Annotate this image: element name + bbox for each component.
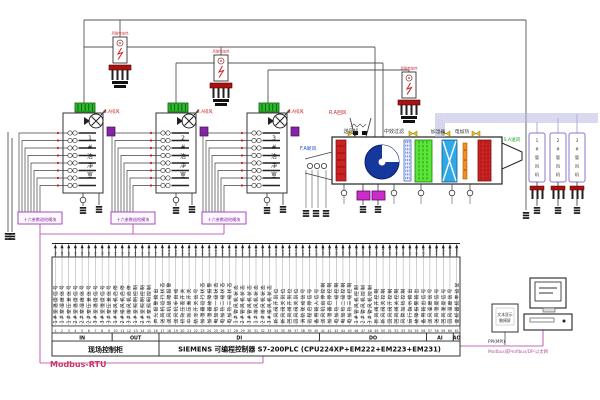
- wire-tag: I0.5: [194, 250, 198, 256]
- wire-label: 2#室湿度信号: [79, 284, 86, 323]
- svg-text:1: 1: [536, 138, 539, 143]
- terminal-number: 58: [435, 329, 439, 333]
- damper-actuator: [200, 127, 208, 136]
- fresh-air-label: F.A新风: [300, 145, 317, 152]
- wire-tag: AIW0: [428, 248, 432, 256]
- clean-room: 3#洁净室E.A排风十六参数巡检模块: [202, 103, 304, 224]
- wire-label: 3#管风机状态: [246, 284, 253, 323]
- wire-tag: AIW2: [435, 248, 439, 256]
- humidifier-label: 加湿器: [431, 128, 446, 135]
- frequency-inverter: [372, 191, 385, 200]
- wire-label: 声光报警输出: [152, 288, 159, 324]
- cabinet-label: 现场控制柜: [88, 345, 123, 354]
- terminal-number: 54: [408, 329, 412, 333]
- terminal-number: 14: [140, 329, 144, 333]
- svg-text:管: 管: [535, 154, 539, 161]
- terminal-number: 51: [388, 329, 392, 333]
- wire-tag: I0.3: [181, 250, 185, 256]
- wire-label: 电加热二级控制: [340, 282, 347, 324]
- frequency-inverter: [357, 191, 370, 200]
- wire-tag: X4: [74, 251, 78, 255]
- wire-label: 消防联动信号: [299, 288, 306, 324]
- terminal-number: 37: [294, 329, 298, 333]
- terminal-number: 29: [241, 329, 245, 333]
- wire-tag: I2.1: [274, 250, 278, 256]
- wire-label: 回风湿度信号: [447, 288, 454, 324]
- wire-label: 运行指示输出: [406, 288, 413, 324]
- wire-tag: X2: [60, 251, 64, 255]
- terminal-number: 43: [334, 329, 338, 333]
- wire-label: 回风温度信号: [440, 288, 447, 324]
- terminal-number: 34: [274, 329, 278, 333]
- svg-text:#: #: [575, 147, 579, 152]
- wire-tag: I1.4: [241, 250, 245, 256]
- terminal-number: 15: [147, 329, 151, 333]
- wire-label: 2#排风机状态: [259, 284, 266, 323]
- wire-tag: I0.6: [201, 250, 205, 256]
- wire-label: 1#室湿度信号: [59, 284, 66, 323]
- terminal-number: 36: [287, 329, 291, 333]
- wire-tag: I2.0: [267, 250, 271, 256]
- wire-tag: I2.6: [308, 250, 312, 256]
- terminal-number: 11: [120, 329, 124, 333]
- wire-tag: I1.1: [221, 250, 225, 256]
- duct-fan-unit: 2#管风机: [550, 133, 566, 214]
- medium-filter: [415, 140, 432, 182]
- wire-tag: Q1.0: [374, 248, 378, 255]
- terminal-number: 45: [348, 329, 352, 333]
- modbus-rtu-label: Modbus-RTU: [50, 360, 106, 369]
- hvac-plc-schematic: 1#洁净室E.A排风十六参数巡检模块2#洁净室E.A排风十六参数巡检模块3#洁净…: [0, 0, 600, 400]
- wire-label: 送风湿度信号: [433, 288, 440, 324]
- svg-text:#: #: [535, 147, 539, 152]
- wire-tag: Y2: [120, 252, 124, 256]
- terminal-number: 27: [227, 329, 231, 333]
- terminal-number: 61: [455, 329, 459, 333]
- wire-label: 1#管风机控制: [353, 284, 360, 323]
- wire-label: 3#排风机状态: [266, 284, 273, 323]
- io-section-label: IN: [79, 335, 85, 341]
- wire-label: 2#排风机启停: [119, 284, 126, 323]
- exhaust-fan-label: E.A排风: [288, 108, 304, 115]
- wire-label: 2#室照明控制: [139, 284, 146, 323]
- duct-sensor: [341, 190, 347, 196]
- duct-heater-label: 风管电加热: [213, 49, 231, 54]
- wire-label: 中效压差开关: [186, 288, 193, 324]
- wire-label: 3#室压差信号: [105, 284, 112, 323]
- terminal-number: 13: [134, 329, 138, 333]
- wire-tag: Q0.5: [354, 248, 358, 255]
- wire-tag: Y6: [147, 252, 151, 256]
- terminal-number: 25: [214, 329, 218, 333]
- terminal-number: 21: [187, 329, 191, 333]
- duct-electric-heater: 风管电加热: [210, 49, 232, 107]
- wire-label: 电加热二级状态: [219, 282, 226, 324]
- wire-tag: I0.0: [160, 250, 164, 256]
- terminal-number: 1: [54, 329, 56, 333]
- wire-label: 回风阀开控制: [386, 288, 393, 324]
- io-section-label: AI: [437, 335, 443, 341]
- terminal-number: 9: [108, 329, 110, 333]
- wire-tag: Y3: [127, 252, 131, 256]
- duct-electric-heater: 风管电加热: [398, 66, 420, 124]
- wire-tag: I2.5: [301, 250, 305, 256]
- svg-text:#: #: [556, 147, 560, 152]
- wire-tag: Q0.3: [341, 248, 345, 255]
- terminal-number: 32: [261, 329, 265, 333]
- wire-tag: I1.2: [227, 250, 231, 256]
- svg-text:洁: 洁: [180, 152, 186, 160]
- wire-tag: Q1.2: [388, 248, 392, 255]
- duct-heater-label: 风管电加热: [401, 66, 419, 71]
- wire-label: 3#排风机启停: [126, 284, 133, 323]
- terminal-number: 3: [68, 329, 70, 333]
- terminal-number: 42: [328, 329, 332, 333]
- terminal-number: 50: [381, 329, 385, 333]
- wire-label: 风管加热控制: [400, 288, 407, 324]
- parameter-module-label: 十六参数巡检模块: [117, 216, 150, 222]
- wire-label: 1#室压差信号: [65, 284, 72, 323]
- terminal-number: 17: [160, 329, 164, 333]
- duct-heater-label: 风管电加热: [112, 31, 130, 36]
- heater-grid: [463, 143, 467, 179]
- wire-label: 2#室温度信号: [72, 284, 79, 323]
- duct-fan-unit: 3#管风机: [569, 133, 585, 214]
- wire-label: 电加热一级控制: [333, 282, 340, 324]
- wire-tag: X5: [80, 251, 84, 255]
- terminal-number: 35: [281, 329, 285, 333]
- wire-label: 回风阀开到位: [286, 288, 293, 324]
- wire-label: 3#室湿度信号: [99, 284, 106, 323]
- wire-label: 3#管风机控制: [366, 284, 373, 323]
- wire-tag: Y7: [154, 252, 158, 256]
- io-section-label: AO: [453, 335, 461, 341]
- wire-label: 新风阀开控制: [373, 288, 380, 324]
- duct-sensor: [391, 190, 397, 196]
- svg-text:洁: 洁: [271, 152, 277, 160]
- terminal-number: 28: [234, 329, 238, 333]
- wire-label: 1#室照明控制: [132, 284, 139, 323]
- wire-tag: Q1.1: [381, 248, 385, 255]
- wire-tag: X7: [94, 251, 98, 255]
- wire-label: 2#管风机控制: [360, 284, 367, 323]
- wire-tag: Y5: [140, 252, 144, 256]
- terminal-number: 38: [301, 329, 305, 333]
- damper-actuator: [291, 127, 299, 136]
- terminal-number: 40: [314, 329, 318, 333]
- room-sensor: [264, 197, 270, 203]
- wire-label: 1#排风机启停: [112, 284, 119, 323]
- terminal-number: 31: [254, 329, 258, 333]
- damper-actuator: [107, 127, 115, 136]
- wire-label: 3#室照明控制: [146, 284, 153, 323]
- wire-label: 送风机手自动: [172, 288, 179, 324]
- wire-label: 电加热三级控制: [346, 282, 353, 324]
- supply-fan-label: 送风机: [343, 128, 358, 135]
- heater-label: 电加热: [455, 128, 470, 135]
- wire-tag: Q1.7: [421, 248, 425, 255]
- terminal-number: 52: [394, 329, 398, 333]
- terminal-number: 16: [154, 329, 158, 333]
- terminal-number: 56: [421, 329, 425, 333]
- exhaust-fan-label: E.A排风: [197, 108, 213, 115]
- wire-tag: X6: [87, 251, 91, 255]
- wire-tag: I1.3: [234, 250, 238, 256]
- wire-tag: Q0.7: [368, 248, 372, 255]
- wire-tag: I1.5: [247, 250, 251, 256]
- terminal-number: 49: [374, 329, 378, 333]
- terminal-number: 23: [200, 329, 204, 333]
- wire-tag: Q1.6: [415, 248, 419, 255]
- terminal-number: 39: [307, 329, 311, 333]
- parameter-module-label: 十六参数巡检模块: [208, 216, 241, 222]
- terminal-number: 41: [321, 329, 325, 333]
- terminal-number: 33: [267, 329, 271, 333]
- wire-label: 送风机运行状态: [159, 282, 166, 324]
- wire-label: 3#室温度信号: [92, 284, 99, 323]
- wire-tag: X9: [107, 251, 111, 255]
- wire-tag: X1: [53, 251, 57, 255]
- plc-label: SIEMENS 可编程控制器 S7-200PLC (CPU224XP+EM222…: [178, 345, 441, 354]
- display-line2: 触摸屏: [499, 318, 511, 323]
- wire-label: 送风机启停控制: [319, 282, 326, 324]
- svg-text:2: 2: [557, 138, 560, 143]
- wire-tag: I1.0: [214, 250, 218, 256]
- wire-label: 新风阀开到位: [273, 288, 280, 324]
- display-line1: 文本显示: [497, 312, 512, 317]
- wire-tag: Q0.2: [334, 248, 338, 255]
- wire-tag: I2.3: [288, 250, 292, 256]
- svg-text:洁: 洁: [87, 152, 93, 160]
- wire-label: 回风阀关到位: [293, 288, 300, 324]
- wire-label: 回风阀关控制: [393, 288, 400, 324]
- wire-label: 新风阀关控制: [380, 288, 387, 324]
- wire-label: 备用输出信号: [420, 288, 427, 324]
- wire-tag: I0.1: [167, 250, 171, 256]
- terminal-number: 5: [81, 329, 83, 333]
- wire-tag: Y4: [134, 252, 138, 256]
- wire-label: 1#排风机状态: [253, 284, 260, 323]
- clean-room: 2#洁净室E.A排风十六参数巡检模块: [111, 103, 213, 224]
- svg-text:3: 3: [576, 138, 579, 143]
- room-sensor: [80, 197, 86, 203]
- wire-tag: I0.2: [174, 250, 178, 256]
- terminal-number: 8: [101, 329, 103, 333]
- terminal-number: 57: [428, 329, 432, 333]
- clean-room: 1#洁净室E.A排风十六参数巡检模块: [18, 103, 120, 224]
- terminal-number: 6: [88, 329, 90, 333]
- terminal-number: 26: [221, 329, 225, 333]
- terminal-number: 10: [114, 329, 118, 333]
- terminal-number: 59: [441, 329, 445, 333]
- room-sensor: [173, 197, 179, 203]
- wire-tag: Q0.6: [361, 248, 365, 255]
- wire-tag: I1.7: [261, 250, 265, 256]
- terminal-number: 44: [341, 329, 345, 333]
- wire-tag: X3: [67, 251, 71, 255]
- wire-label: 初效压差开关: [179, 288, 186, 324]
- wire-tag: I2.7: [314, 250, 318, 256]
- exhaust-fan-label: E.A排风: [104, 108, 120, 115]
- wire-tag: Q1.3: [395, 248, 399, 255]
- svg-text:管: 管: [575, 154, 579, 161]
- parameter-module-label: 十六参数巡检模块: [24, 216, 57, 222]
- io-section-label: DI: [236, 335, 242, 341]
- wire-label: 送风机故障报警: [166, 282, 173, 324]
- terminal-number: 55: [414, 329, 418, 333]
- wire-tag: I2.2: [281, 250, 285, 256]
- duct-sensor: [467, 190, 473, 196]
- terminal-number: 20: [180, 329, 184, 333]
- terminal-number: 7: [94, 329, 96, 333]
- wire-label: 新风阀关到位: [279, 288, 286, 324]
- wire-label: 备用输入信号: [313, 288, 320, 324]
- wire-label: 故障报警输出: [413, 288, 420, 324]
- ppi-label: PPI(MPI): [488, 339, 505, 344]
- wire-tag: I0.4: [187, 250, 191, 256]
- terminal-number: 24: [207, 329, 211, 333]
- terminal-number: 22: [194, 329, 198, 333]
- wire-tag: I0.7: [207, 250, 211, 256]
- wire-label: 1#管风机状态: [233, 284, 240, 323]
- wire-tag: Q1.4: [401, 248, 405, 255]
- wire-label: 1#室温度信号: [52, 284, 59, 323]
- wire-tag: Q0.1: [328, 248, 332, 255]
- terminal-number: 18: [167, 329, 171, 333]
- wire-tag: I2.4: [294, 250, 298, 256]
- wire-label: 电加热三级状态: [226, 282, 233, 324]
- wire-label: 2#管风机状态: [239, 284, 246, 323]
- wire-tag: AIW4: [441, 248, 445, 256]
- wire-tag: AQW0: [455, 246, 459, 255]
- wire-tag: Q0.4: [348, 248, 352, 255]
- operator-computer: [524, 278, 572, 330]
- terminal-number: 19: [174, 329, 178, 333]
- supply-air-outlet: [502, 143, 522, 169]
- wire-tag: X8: [100, 251, 104, 255]
- duct-fan-unit: 1#管风机: [529, 133, 545, 214]
- wire-label: 变频器频率给定: [453, 282, 460, 324]
- wire-tag: AIW6: [448, 248, 452, 256]
- terminal-number: 30: [247, 329, 251, 333]
- wire-tag: Q1.5: [408, 248, 412, 255]
- terminal-number: 46: [354, 329, 358, 333]
- wire-tag: I1.6: [254, 250, 258, 256]
- wire-label: 加湿器启停控制: [326, 282, 333, 324]
- terminal-number: 12: [127, 329, 131, 333]
- terminal-number: 4: [74, 329, 76, 333]
- wire-label: 送风温度信号: [427, 288, 434, 324]
- return-air-label: R.A回风: [329, 110, 347, 116]
- wire-label: 加湿器运行状态: [199, 282, 206, 324]
- io-section-label: OUT: [130, 335, 142, 341]
- io-section-label: DO: [369, 335, 377, 341]
- electric-heater-section: [478, 140, 491, 181]
- wire-label: 加湿器故障报警: [206, 282, 213, 324]
- terminal-number: 48: [368, 329, 372, 333]
- duct-sensor: [449, 190, 455, 196]
- terminal-number: 53: [401, 329, 405, 333]
- filter-label: 中效过滤: [384, 128, 404, 135]
- svg-text:管: 管: [556, 154, 560, 161]
- wire-label: 远程启停信号: [306, 288, 313, 324]
- duct-electric-heater: 风管电加热: [109, 31, 131, 89]
- wire-label: 2#室压差信号: [85, 284, 92, 323]
- wire-tag: Y1: [114, 252, 118, 256]
- terminal-number: 60: [448, 329, 452, 333]
- supply-air-label: S.A送风: [504, 136, 521, 143]
- network-label: Modbus或Profibus/DP-以太网: [488, 348, 548, 355]
- duct-sensor: [418, 190, 424, 196]
- wire-label: 电加热一级状态: [212, 282, 219, 324]
- terminal-number: 2: [61, 329, 63, 333]
- terminal-number: 47: [361, 329, 365, 333]
- wire-label: 防冻开关信号: [192, 288, 199, 324]
- wire-tag: Q0.0: [321, 248, 325, 255]
- schematic-canvas: 1#洁净室E.A排风十六参数巡检模块2#洁净室E.A排风十六参数巡检模块3#洁净…: [0, 0, 600, 400]
